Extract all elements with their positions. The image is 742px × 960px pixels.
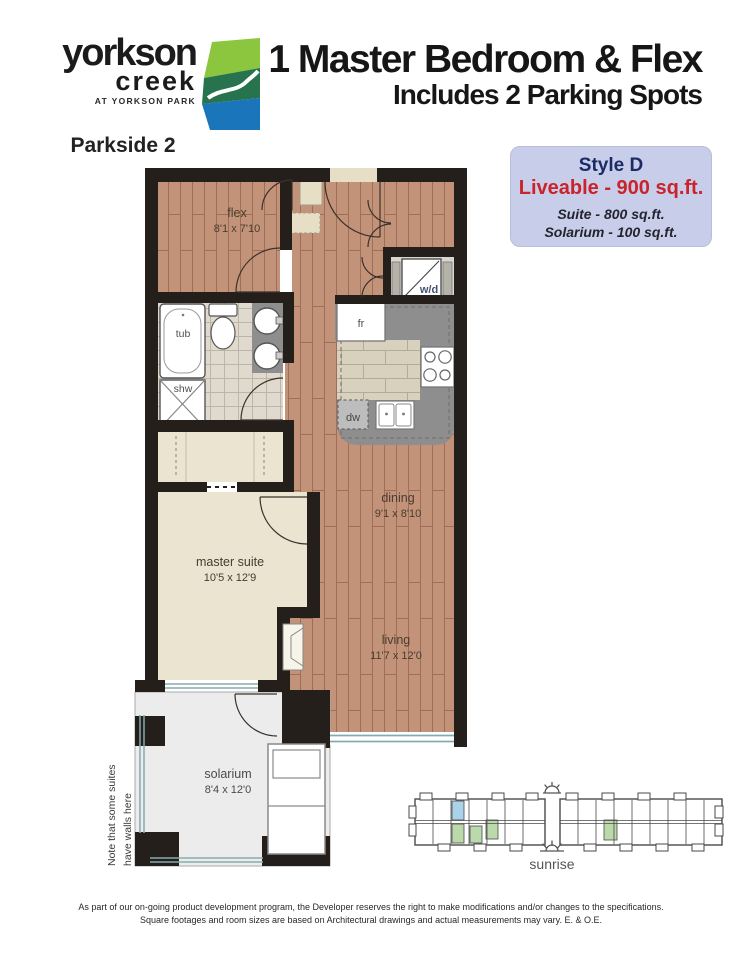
entry-closet-shelf <box>300 179 322 205</box>
washer-dryer-label: w/d <box>419 284 438 296</box>
solarium-label: solarium <box>204 767 251 781</box>
sun-icon-top <box>543 783 561 794</box>
tub-label: tub <box>176 328 191 340</box>
dining-dims: 9'1 x 8'10 <box>375 508 421 520</box>
toilet-tank <box>209 304 237 316</box>
fireplace-niche <box>283 624 303 670</box>
toilet-bowl <box>211 317 235 349</box>
entry-threshold <box>330 168 377 182</box>
note-line-2: have walls here <box>120 694 136 866</box>
site-wing-right <box>560 799 722 845</box>
living-label: living <box>382 633 411 647</box>
solarium-dims: 8'4 x 12'0 <box>205 784 251 796</box>
dining-label: dining <box>381 491 414 505</box>
hall-closet-shelf <box>288 213 320 233</box>
site-plan: sunrise <box>409 783 723 873</box>
living-dims: 11'7 x 12'0 <box>370 650 422 662</box>
disclaimer-line-1: As part of our on-going product developm… <box>0 901 742 914</box>
site-unit-highlight-blue <box>452 801 464 820</box>
suite-walls-note: Note that some suites have walls here <box>104 694 146 866</box>
kitchen-area: fr dw <box>335 302 454 445</box>
flex-dims: 8'1 x 7'10 <box>214 223 260 235</box>
note-line-1: Note that some suites <box>104 694 120 866</box>
flex-floor <box>158 182 280 292</box>
flex-label: flex <box>227 206 247 220</box>
sunrise-label: sunrise <box>529 856 574 872</box>
master-label: master suite <box>196 555 264 569</box>
bed-pillow <box>273 750 320 778</box>
kitchen-tile-floor <box>337 340 420 400</box>
fridge-label: fr <box>358 318 365 330</box>
floorplan-brochure-page: yorkson creek AT YORKSON PARK Parkside 2… <box>0 0 742 960</box>
bed-furniture <box>268 744 325 854</box>
master-dims: 10'5 x 12'9 <box>204 572 257 584</box>
legal-disclaimer: As part of our on-going product developm… <box>0 901 742 926</box>
shower-label: shw <box>174 383 193 395</box>
dishwasher-label: dw <box>346 412 360 424</box>
master-floor-lower <box>158 618 277 680</box>
disclaimer-line-2: Square footages and room sizes are based… <box>0 914 742 927</box>
